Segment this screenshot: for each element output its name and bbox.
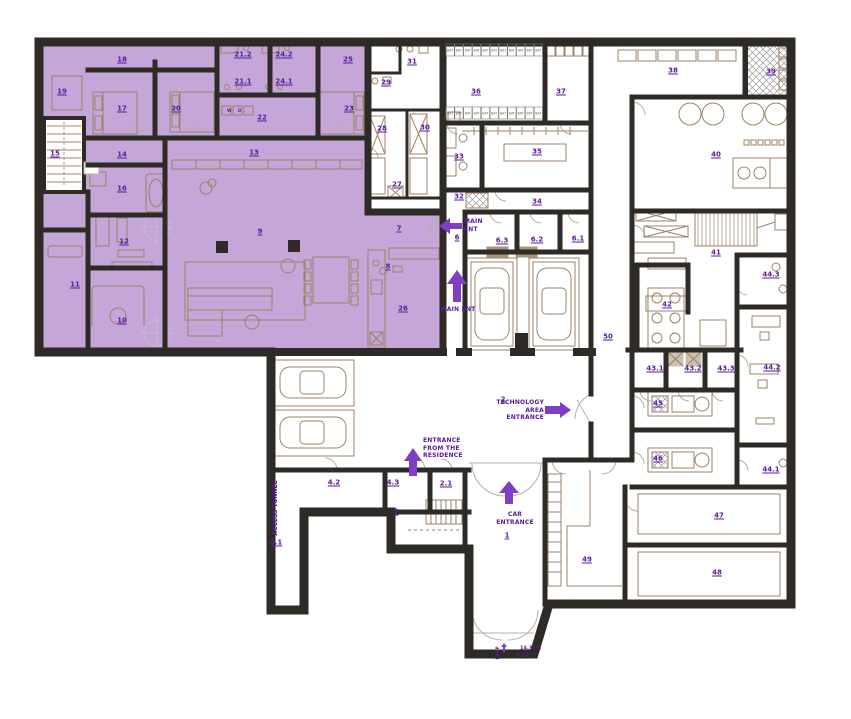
room-label-6.2: 6.2 xyxy=(531,237,543,244)
room-label-32: 32 xyxy=(454,194,464,201)
battery-locker-label: BAT xyxy=(526,112,532,116)
room-label-6.3: 6.3 xyxy=(496,238,508,245)
entrance-label-0: MAIN ENT xyxy=(464,218,498,233)
room-label-4.2: 4.2 xyxy=(328,480,340,487)
room-label-13: 13 xyxy=(249,150,259,157)
room-label-9: 9 xyxy=(258,229,263,236)
room-label-41: 41 xyxy=(711,250,721,257)
room-label-34: 34 xyxy=(532,199,542,206)
room-label-33: 33 xyxy=(454,154,464,161)
room-label-7: 7 xyxy=(397,226,402,233)
battery-locker-label: BAT xyxy=(535,49,541,53)
room-label-42: 42 xyxy=(662,302,672,309)
battery-locker-label: BAT xyxy=(491,49,497,53)
room-label-44.2: 44.2 xyxy=(763,365,780,372)
room-label-36: 36 xyxy=(471,89,481,96)
room-label-22: 22 xyxy=(257,115,267,122)
room-label-1: 1 xyxy=(505,533,510,540)
room-label-21.1: 21.1 xyxy=(234,79,251,86)
room-label-12: 12 xyxy=(119,239,129,246)
room-label-31: 31 xyxy=(407,59,417,66)
room-label-29: 29 xyxy=(381,80,391,87)
battery-locker-label: BAT xyxy=(456,49,462,53)
room-label-14: 14 xyxy=(117,152,127,159)
battery-locker-label: BAT xyxy=(465,112,471,116)
room-label-44.1: 44.1 xyxy=(762,467,779,474)
room-label-44.3: 44.3 xyxy=(762,272,779,279)
battery-locker-label: BAT xyxy=(500,49,506,53)
room-label-19: 19 xyxy=(57,89,67,96)
room-label-6: 6 xyxy=(455,235,460,242)
room-label-35: 35 xyxy=(532,149,542,156)
battery-locker-label: BAT xyxy=(509,49,515,53)
room-label-30: 30 xyxy=(420,125,430,132)
room-label-25: 25 xyxy=(343,57,353,64)
room-label-28: 28 xyxy=(377,126,387,133)
room-label-23: 23 xyxy=(344,106,354,113)
battery-locker-label: BAT xyxy=(465,49,471,53)
battery-locker-label: BAT xyxy=(456,112,462,116)
room-label-39: 39 xyxy=(766,69,776,76)
entrance-label-3: ENTRANCE FROM THE RESIDENCE xyxy=(423,437,478,460)
floor-plan: BATBATBATBATBATBATBATBATBATBATBATBATBATB… xyxy=(0,0,851,719)
room-label-43.2: 43.2 xyxy=(684,366,701,373)
battery-locker-label: BAT xyxy=(535,112,541,116)
room-label-8: 8 xyxy=(386,264,391,271)
annotation-5: D xyxy=(238,109,241,113)
room-label-26: 26 xyxy=(398,306,408,313)
battery-lockers: BATBATBATBATBATBATBATBATBATBATBATBATBATB… xyxy=(446,44,543,119)
battery-locker-label: BAT xyxy=(447,112,453,116)
annotation-4: W xyxy=(227,109,231,113)
room-label-6.1: 6.1 xyxy=(572,236,584,243)
room-label-45: 45 xyxy=(653,401,663,408)
room-label-17: 17 xyxy=(117,106,127,113)
entrance-label-1: MAIN ENT xyxy=(438,306,478,314)
room-label-4.3: 4.3 xyxy=(387,480,399,487)
annotation-3: 8.13° xyxy=(516,654,531,659)
room-label-10: 10 xyxy=(117,318,127,325)
room-label-18: 18 xyxy=(117,57,127,64)
annotation-2: 14.35% xyxy=(520,647,541,652)
room-label-43.1: 43.1 xyxy=(646,366,663,373)
room-label-38: 38 xyxy=(668,68,678,75)
entrance-label-4: CAR ENTRANCE xyxy=(490,511,540,526)
room-label-47: 47 xyxy=(714,513,724,520)
room-label-27: 27 xyxy=(392,182,402,189)
floorplan-drawing: BATBATBATBATBATBATBATBATBATBATBATBATBATB… xyxy=(0,0,851,719)
room-label-15: 15 xyxy=(50,151,60,158)
battery-locker-label: BAT xyxy=(482,49,488,53)
battery-locker-label: BAT xyxy=(447,49,453,53)
technology-entrance-arrow-icon xyxy=(545,402,571,418)
battery-locker-label: BAT xyxy=(491,112,497,116)
battery-locker-label: BAT xyxy=(500,112,506,116)
annotation-1: RAMP xyxy=(496,646,500,659)
room-label-4.1: 4.1 xyxy=(270,540,282,547)
room-label-11: 11 xyxy=(70,282,80,289)
room-label-46: 46 xyxy=(653,456,663,463)
room-label-20: 20 xyxy=(171,106,181,113)
car-entrance-arrow-icon xyxy=(499,481,519,504)
room-label-43.3: 43.3 xyxy=(717,366,734,373)
room-label-50: 50 xyxy=(603,334,613,341)
room-label-3: 3 xyxy=(394,509,399,516)
room-label-24.2: 24.2 xyxy=(275,52,292,59)
entrance-label-2: TECHNOLOGY AREA ENTRANCE xyxy=(496,399,544,422)
room-label-49: 49 xyxy=(582,557,592,564)
battery-locker-label: BAT xyxy=(518,49,524,53)
room-label-24.1: 24.1 xyxy=(275,79,292,86)
room-label-37: 37 xyxy=(556,89,566,96)
battery-locker-label: BAT xyxy=(509,112,515,116)
room-label-2.1: 2.1 xyxy=(440,481,452,488)
room-label-21.2: 21.2 xyxy=(234,52,251,59)
battery-locker-label: BAT xyxy=(526,49,532,53)
room-label-16: 16 xyxy=(117,186,127,193)
battery-locker-label: BAT xyxy=(518,112,524,116)
battery-locker-label: BAT xyxy=(482,112,488,116)
room-label-48: 48 xyxy=(712,570,722,577)
annotation-0: ACCESS TUNNEL xyxy=(273,481,279,536)
battery-locker-label: BAT xyxy=(474,49,480,53)
battery-locker-label: BAT xyxy=(474,112,480,116)
room-label-40: 40 xyxy=(711,152,721,159)
